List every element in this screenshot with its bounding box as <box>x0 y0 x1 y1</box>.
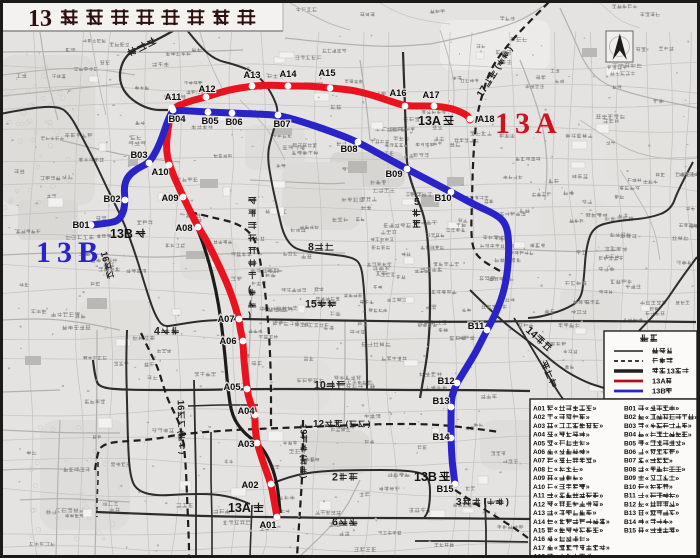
svg-text:B02: B02 <box>103 194 120 204</box>
svg-text:A10: A10 <box>533 484 545 491</box>
svg-text:B03: B03 <box>130 150 147 160</box>
svg-text:12: 12 <box>313 419 325 430</box>
svg-text:A10: A10 <box>151 167 168 177</box>
svg-text:A12: A12 <box>533 501 545 508</box>
svg-text:»: » <box>675 475 679 482</box>
svg-text:): ) <box>299 476 308 479</box>
svg-text:»: » <box>675 449 679 456</box>
svg-text:B15: B15 <box>624 528 636 535</box>
svg-text:B13: B13 <box>432 396 449 406</box>
svg-text:A01: A01 <box>259 520 276 530</box>
svg-text:«: « <box>554 493 558 500</box>
svg-text:»: » <box>675 528 679 535</box>
svg-text:«: « <box>554 502 558 509</box>
svg-text:»: » <box>599 528 603 535</box>
svg-text:»: » <box>593 406 597 413</box>
svg-text:B06: B06 <box>225 117 242 127</box>
svg-text:«: « <box>645 467 649 474</box>
svg-text:A13: A13 <box>533 510 545 517</box>
svg-text:«: « <box>645 519 649 526</box>
svg-text:B02: B02 <box>624 414 636 421</box>
svg-text:13A: 13A <box>228 501 251 515</box>
svg-text:»: » <box>599 502 603 509</box>
svg-text:«: « <box>554 519 558 526</box>
svg-text:B01: B01 <box>624 405 636 412</box>
svg-text:A04: A04 <box>533 432 545 439</box>
svg-text:»: » <box>606 519 610 526</box>
svg-text:B12: B12 <box>624 501 636 508</box>
svg-text:A15: A15 <box>533 528 545 535</box>
svg-text:«: « <box>554 545 558 552</box>
svg-text:«: « <box>645 502 649 509</box>
svg-text:«: « <box>645 493 649 500</box>
svg-text:B07: B07 <box>624 458 636 465</box>
svg-text:»: » <box>586 414 590 421</box>
svg-text:»: » <box>579 467 583 474</box>
svg-text:A02: A02 <box>241 480 258 490</box>
svg-text:»: » <box>669 484 673 491</box>
svg-text:«: « <box>554 432 558 439</box>
svg-text:»: » <box>579 475 583 482</box>
svg-text:A16: A16 <box>533 536 545 543</box>
svg-text:A15: A15 <box>318 68 335 78</box>
svg-text:B04: B04 <box>624 432 636 439</box>
svg-text:«: « <box>554 467 558 474</box>
svg-text:13A: 13A <box>652 377 666 386</box>
svg-text:A14: A14 <box>279 69 297 79</box>
svg-text:A06: A06 <box>533 449 545 456</box>
svg-text:A14: A14 <box>533 519 545 526</box>
svg-text:»: » <box>586 449 590 456</box>
svg-text:«: « <box>645 406 649 413</box>
svg-text:B09: B09 <box>385 169 402 179</box>
svg-text:«: « <box>554 406 558 413</box>
svg-text:(: ( <box>299 455 308 458</box>
svg-text:8: 8 <box>308 241 314 253</box>
svg-text:): ) <box>248 310 251 320</box>
svg-text:»: » <box>586 536 590 543</box>
svg-text:«: « <box>645 441 649 448</box>
svg-text:A02: A02 <box>533 414 545 421</box>
svg-text:»: » <box>669 519 673 526</box>
svg-text:B07: B07 <box>273 119 290 129</box>
svg-text:»: » <box>682 441 686 448</box>
svg-text:B05: B05 <box>201 116 218 126</box>
svg-text:4: 4 <box>154 325 160 337</box>
svg-text:19: 19 <box>299 424 310 434</box>
svg-text:13A: 13A <box>418 114 441 128</box>
svg-text:B15: B15 <box>436 484 453 494</box>
svg-text:5: 5 <box>414 197 420 208</box>
svg-text:«: « <box>554 423 558 430</box>
svg-text:«: « <box>554 536 558 543</box>
svg-text:B14: B14 <box>624 519 636 526</box>
svg-text:A16: A16 <box>389 88 406 98</box>
svg-text:«: « <box>554 414 558 421</box>
svg-text:«: « <box>554 510 558 517</box>
svg-text:): ) <box>506 497 509 507</box>
svg-text:»: » <box>688 432 692 439</box>
svg-text:»: » <box>682 467 686 474</box>
svg-text:B03: B03 <box>624 423 636 430</box>
svg-text:13A: 13A <box>495 107 562 140</box>
svg-text:(: ( <box>346 420 349 429</box>
svg-text:A05: A05 <box>223 382 240 392</box>
svg-text:13: 13 <box>667 366 675 375</box>
svg-text:»: » <box>593 510 597 517</box>
svg-text:»: » <box>675 510 679 517</box>
svg-text:«: « <box>645 458 649 465</box>
svg-text:A01: A01 <box>533 405 545 412</box>
svg-text:«: « <box>645 475 649 482</box>
svg-text:(: ( <box>484 497 487 507</box>
svg-text:A13: A13 <box>243 70 260 80</box>
svg-text:»: » <box>675 502 679 509</box>
svg-text:A09: A09 <box>161 193 178 203</box>
svg-text:»: » <box>688 423 692 430</box>
svg-text:B11: B11 <box>468 321 485 331</box>
svg-text:»: » <box>675 493 679 500</box>
svg-text:10: 10 <box>314 379 326 391</box>
svg-text:«: « <box>645 414 649 421</box>
svg-text:A17: A17 <box>422 90 439 100</box>
svg-text:«: « <box>645 432 649 439</box>
svg-text:»: » <box>586 432 590 439</box>
svg-text:A03: A03 <box>533 423 545 430</box>
svg-text:13B: 13B <box>110 227 133 241</box>
svg-text:»: » <box>675 406 679 413</box>
svg-text:»: » <box>586 484 590 491</box>
svg-text:A12: A12 <box>198 84 215 94</box>
svg-text:«: « <box>554 441 558 448</box>
svg-text:B06: B06 <box>624 449 636 456</box>
svg-text:«: « <box>645 510 649 517</box>
svg-text:B08: B08 <box>340 144 357 154</box>
svg-text:A18: A18 <box>477 114 494 124</box>
svg-text:A17: A17 <box>533 545 545 552</box>
svg-text:B10: B10 <box>434 193 451 203</box>
svg-text:A08: A08 <box>533 466 545 473</box>
svg-text:«: « <box>645 423 649 430</box>
svg-text:A03: A03 <box>237 439 254 449</box>
svg-text:A11: A11 <box>165 92 182 102</box>
svg-text:13: 13 <box>28 6 52 32</box>
svg-text:A09: A09 <box>533 475 545 482</box>
svg-text:«: « <box>554 458 558 465</box>
svg-text:13B: 13B <box>652 387 666 396</box>
svg-text:15: 15 <box>305 298 317 310</box>
svg-text:«: « <box>554 528 558 535</box>
svg-text:A04: A04 <box>237 406 255 416</box>
svg-text:«: « <box>645 528 649 535</box>
svg-text:6: 6 <box>332 516 338 528</box>
svg-text:«: « <box>645 484 649 491</box>
svg-text:»: » <box>586 441 590 448</box>
svg-text:A07: A07 <box>217 314 234 324</box>
svg-text:B12: B12 <box>437 376 454 386</box>
svg-text:16: 16 <box>176 400 187 411</box>
svg-text:A06: A06 <box>219 336 236 346</box>
svg-text:«: « <box>554 484 558 491</box>
svg-text:3: 3 <box>456 497 462 508</box>
svg-text:«: « <box>554 475 558 482</box>
svg-text:»: » <box>593 458 597 465</box>
svg-text:B08: B08 <box>624 466 636 473</box>
svg-text:»: » <box>606 545 610 552</box>
svg-text:B13: B13 <box>624 510 636 517</box>
svg-text:A08: A08 <box>175 223 192 233</box>
svg-text:B10: B10 <box>624 484 636 491</box>
svg-text:B04: B04 <box>168 114 186 124</box>
svg-text:«: « <box>645 449 649 456</box>
svg-text:B14: B14 <box>432 432 450 442</box>
svg-text:2: 2 <box>332 471 338 483</box>
svg-text:B01: B01 <box>72 220 89 230</box>
svg-text:B05: B05 <box>624 440 636 447</box>
svg-text:13B: 13B <box>36 236 104 269</box>
svg-text:B09: B09 <box>624 475 636 482</box>
svg-text:): ) <box>368 420 371 429</box>
svg-text:»: » <box>669 458 673 465</box>
svg-text:A05: A05 <box>533 440 545 447</box>
svg-text:13B: 13B <box>414 470 437 484</box>
svg-text:A11: A11 <box>533 493 545 500</box>
svg-text:A07: A07 <box>533 458 545 465</box>
svg-text:B11: B11 <box>624 493 636 500</box>
svg-text:»: » <box>599 423 603 430</box>
svg-text:»: » <box>599 493 603 500</box>
svg-text:«: « <box>554 449 558 456</box>
